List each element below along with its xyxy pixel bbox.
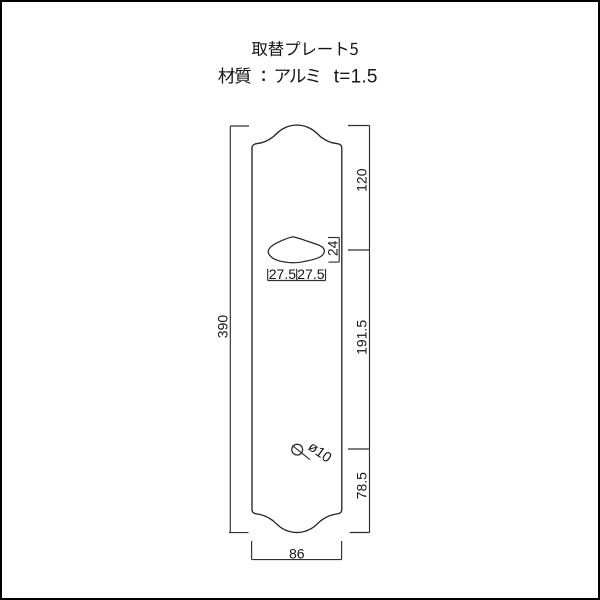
svg-text:390: 390 bbox=[215, 315, 231, 339]
svg-text:120: 120 bbox=[354, 168, 370, 192]
svg-text:78.5: 78.5 bbox=[354, 472, 370, 499]
svg-text:86: 86 bbox=[289, 546, 305, 562]
svg-text:27.5: 27.5 bbox=[269, 266, 296, 282]
svg-text:27.5: 27.5 bbox=[297, 266, 324, 282]
svg-text:t=1.5: t=1.5 bbox=[334, 67, 378, 88]
svg-text:191.5: 191.5 bbox=[354, 320, 370, 355]
svg-text:24: 24 bbox=[325, 240, 341, 256]
